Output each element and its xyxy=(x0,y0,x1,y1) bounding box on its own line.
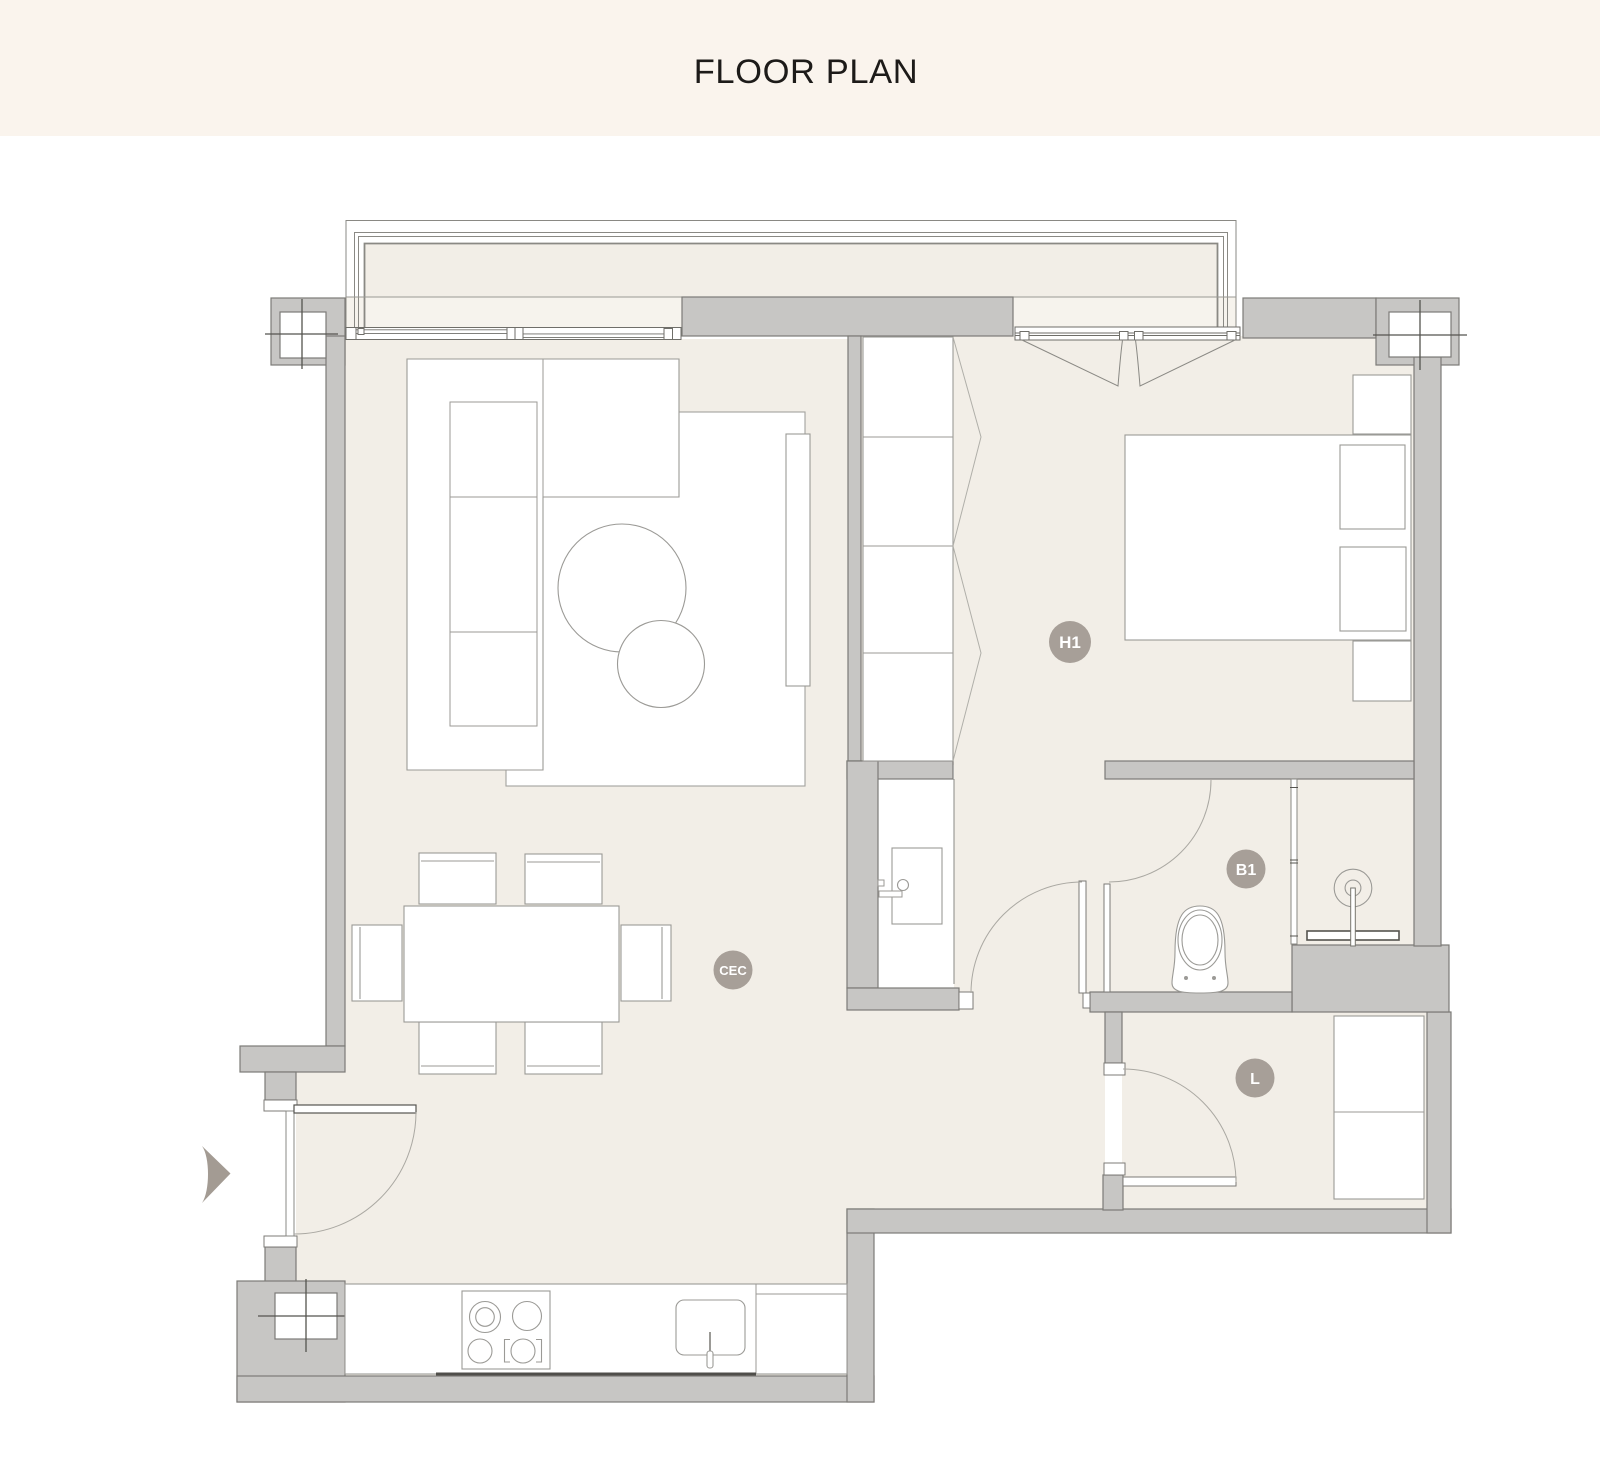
svg-text:H1: H1 xyxy=(1059,633,1081,652)
svg-text:B1: B1 xyxy=(1236,862,1257,879)
svg-text:FLOOR PLAN: FLOOR PLAN xyxy=(694,53,919,91)
svg-text:L: L xyxy=(1250,1071,1260,1088)
svg-text:CEC: CEC xyxy=(719,963,747,978)
